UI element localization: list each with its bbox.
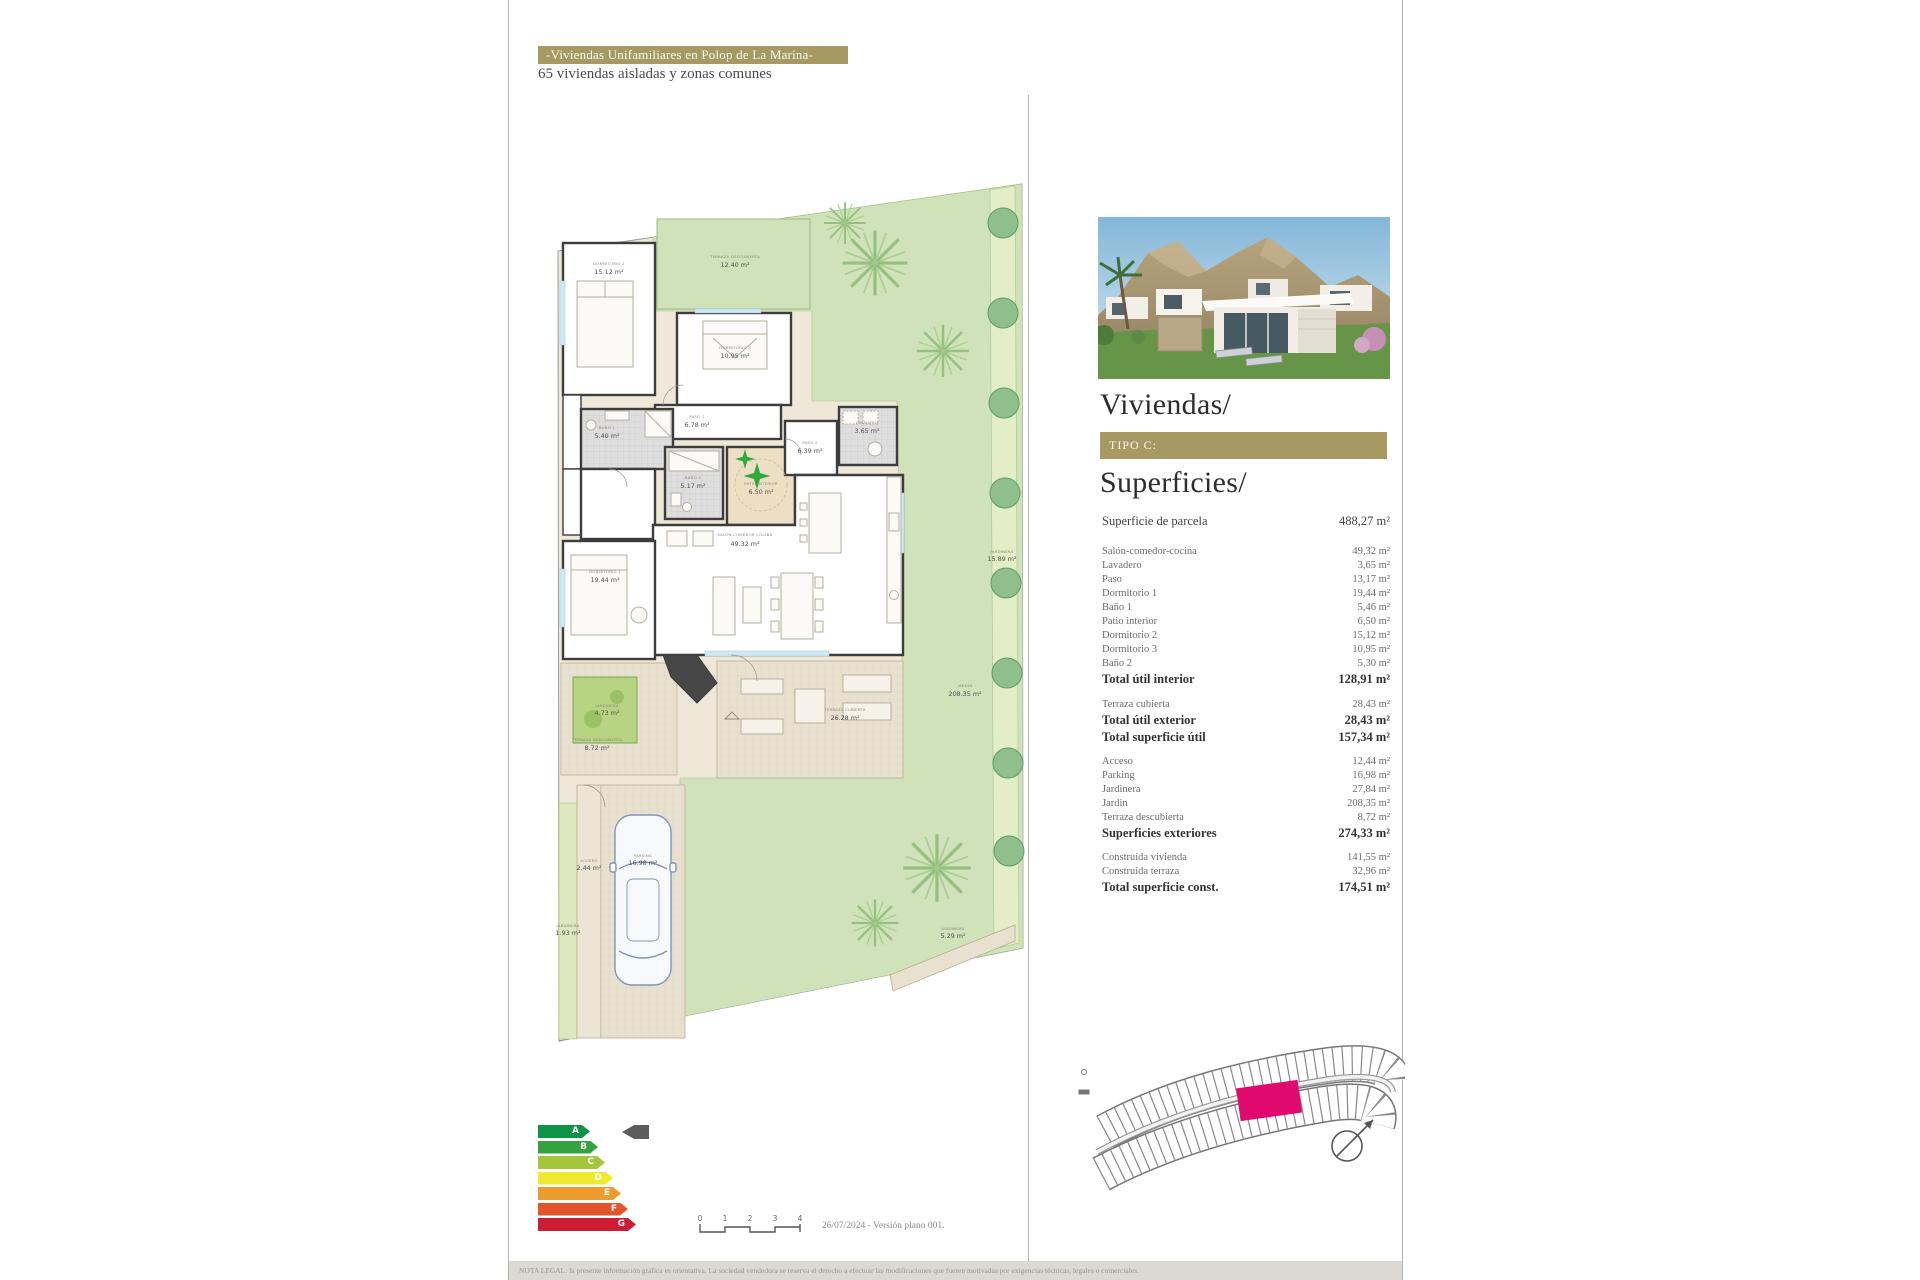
svg-text:19.44 m²: 19.44 m² xyxy=(590,576,620,584)
table-row: Jardinera27,84 m² xyxy=(1102,784,1390,798)
svg-text:JARDIN: JARDIN xyxy=(957,683,973,688)
column-divider xyxy=(1028,95,1029,1261)
superficies-table: Superficie de parcela488,27 m² Salón-com… xyxy=(1102,514,1390,897)
panel-title: Viviendas/ xyxy=(1100,388,1231,422)
wardrobe xyxy=(563,469,581,535)
energy-grade-a: A xyxy=(538,1125,590,1138)
table-row: Baño 25,30 m² xyxy=(1102,658,1390,672)
svg-text:PASO 2: PASO 2 xyxy=(802,440,817,445)
table-row: Terraza cubierta28,43 m² xyxy=(1102,699,1390,713)
car xyxy=(610,815,676,985)
svg-text:10.95 m²: 10.95 m² xyxy=(720,352,750,360)
svg-text:BAÑO 2: BAÑO 2 xyxy=(685,475,701,480)
legal-note: NOTA LEGAL: la presente información gráf… xyxy=(519,1266,1139,1275)
table-total-row: Total útil interior128,91 m² xyxy=(1102,672,1390,689)
svg-text:2: 2 xyxy=(748,1214,753,1223)
table-row: Acceso12,44 m² xyxy=(1102,756,1390,770)
access-path xyxy=(577,785,601,1038)
table-row: Superficie de parcela488,27 m² xyxy=(1102,514,1390,532)
energy-grade-g: G xyxy=(538,1218,636,1231)
energy-grade-f: F xyxy=(538,1203,628,1216)
plan-sheet: -Viviendas Unifamiliares en Polop de La … xyxy=(0,0,1920,1280)
table-row: Salón-comedor-cocina49,32 m² xyxy=(1102,546,1390,560)
svg-text:15.12 m²: 15.12 m² xyxy=(594,268,624,276)
svg-text:TERRAZA DESCUBIERTA: TERRAZA DESCUBIERTA xyxy=(709,254,760,259)
svg-text:208.35 m²: 208.35 m² xyxy=(948,690,982,698)
legal-note-bar: NOTA LEGAL: la presente información gráf… xyxy=(509,1261,1402,1280)
table-row: Dormitorio 310,95 m² xyxy=(1102,644,1390,658)
project-title: -Viviendas Unifamiliares en Polop de La … xyxy=(546,47,813,62)
svg-text:PASO 1: PASO 1 xyxy=(689,414,704,419)
svg-text:LAVADERO: LAVADERO xyxy=(856,420,878,425)
page-left-border xyxy=(508,0,509,1280)
energy-grade-c: C xyxy=(538,1156,605,1169)
table-row: Lavadero3,65 m² xyxy=(1102,560,1390,574)
svg-text:JARDINERA: JARDINERA xyxy=(595,703,619,708)
svg-text:15.89 m²: 15.89 m² xyxy=(987,555,1017,563)
svg-text:SALÓN-COMEDOR COCINA: SALÓN-COMEDOR COCINA xyxy=(717,532,772,537)
table-total-row: Total superficie útil157,34 m² xyxy=(1102,730,1390,747)
svg-text:DORMITORIO 1: DORMITORIO 1 xyxy=(589,569,621,574)
energy-grade-b: B xyxy=(538,1141,598,1154)
svg-text:5.29 m²: 5.29 m² xyxy=(940,932,965,940)
svg-text:4: 4 xyxy=(798,1214,803,1223)
north-arrow-icon xyxy=(1332,1120,1373,1161)
svg-text:6.78 m²: 6.78 m² xyxy=(684,421,709,429)
svg-text:DORMITORIO 3: DORMITORIO 3 xyxy=(719,345,751,350)
covered-terrace xyxy=(717,661,903,778)
villa-render-photo xyxy=(1098,217,1390,379)
svg-text:TERRAZA DESCUBIERTA: TERRAZA DESCUBIERTA xyxy=(571,737,622,742)
svg-text:2.44 m²: 2.44 m² xyxy=(576,864,601,872)
svg-text:3: 3 xyxy=(773,1214,778,1223)
svg-text:5.40 m²: 5.40 m² xyxy=(594,432,619,440)
svg-text:6.50 m²: 6.50 m² xyxy=(748,488,773,496)
table-row: Baño 15,46 m² xyxy=(1102,602,1390,616)
svg-text:1: 1 xyxy=(723,1214,728,1223)
svg-text:PARKING: PARKING xyxy=(634,853,652,858)
plan-version: 26/07/2024 - Versión plano 001. xyxy=(822,1221,945,1231)
svg-text:DORMITORIO 2: DORMITORIO 2 xyxy=(593,261,625,266)
tipo-banner: TIPO C: xyxy=(1100,432,1387,459)
project-title-banner: -Viviendas Unifamiliares en Polop de La … xyxy=(538,46,848,64)
table-row: Construida vivienda141,55 m² xyxy=(1102,852,1390,866)
tipo-label: TIPO C: xyxy=(1109,438,1157,452)
svg-text:PATIO INTERIOR: PATIO INTERIOR xyxy=(744,481,778,486)
floor-plan: DORMITORIO 215.12 m² TERRAZA DESCUBIERTA… xyxy=(545,163,1025,1061)
svg-text:1.93 m²: 1.93 m² xyxy=(555,929,580,937)
table-total-row: Total superficie const.174,51 m² xyxy=(1102,880,1390,897)
table-row: Jardin208,35 m² xyxy=(1102,798,1390,812)
access-zone xyxy=(559,785,685,1039)
svg-text:0: 0 xyxy=(698,1214,703,1223)
svg-text:BAÑO 1: BAÑO 1 xyxy=(599,425,615,430)
energy-grade-e: E xyxy=(538,1187,621,1200)
table-total-row: Superficies exteriores274,33 m² xyxy=(1102,826,1390,843)
site-plan xyxy=(1075,1028,1405,1198)
scale-bar: 0 1 2 3 4 xyxy=(695,1213,815,1239)
svg-text:6.39 m²: 6.39 m² xyxy=(797,447,822,455)
superficies-title: Superficies/ xyxy=(1100,466,1247,500)
table-row: Patio interior6,50 m² xyxy=(1102,616,1390,630)
wardrobe xyxy=(563,395,581,469)
planter-1-93 xyxy=(559,803,577,1039)
project-subtitle: 65 viviendas aisladas y zonas comunes xyxy=(538,66,772,83)
table-row: Terraza descubierta8,72 m² xyxy=(1102,812,1390,826)
svg-text:JARDINERA: JARDINERA xyxy=(941,926,965,931)
table-row: Dormitorio 215,12 m² xyxy=(1102,630,1390,644)
svg-text:ACCESO: ACCESO xyxy=(580,858,597,863)
table-row: Parking16,98 m² xyxy=(1102,770,1390,784)
table-row: Dormitorio 119,44 m² xyxy=(1102,588,1390,602)
table-row: Paso13,17 m² xyxy=(1102,574,1390,588)
svg-text:JARDINERA: JARDINERA xyxy=(556,923,580,928)
svg-text:12.40 m²: 12.40 m² xyxy=(720,261,750,269)
legend-marks xyxy=(1079,1070,1089,1095)
svg-text:3.65 m²: 3.65 m² xyxy=(854,427,879,435)
svg-text:16.98 m²: 16.98 m² xyxy=(628,859,658,867)
svg-text:26.28 m²: 26.28 m² xyxy=(830,714,860,722)
svg-text:8.72 m²: 8.72 m² xyxy=(584,744,609,752)
hall xyxy=(581,469,655,539)
svg-text:TERRAZA CUBIERTA: TERRAZA CUBIERTA xyxy=(823,707,866,712)
svg-text:5.17 m²: 5.17 m² xyxy=(680,482,705,490)
energy-rating-scale: A B C D E F G xyxy=(538,1125,698,1234)
entrance-terrace xyxy=(561,663,677,775)
table-row: Construida terraza32,96 m² xyxy=(1102,866,1390,880)
svg-text:JARDINERA: JARDINERA xyxy=(990,549,1014,554)
energy-grade-d: D xyxy=(538,1172,613,1185)
svg-text:49.32 m²: 49.32 m² xyxy=(730,540,760,548)
svg-text:4.73 m²: 4.73 m² xyxy=(594,709,619,717)
table-total-row: Total útil exterior28,43 m² xyxy=(1102,713,1390,730)
